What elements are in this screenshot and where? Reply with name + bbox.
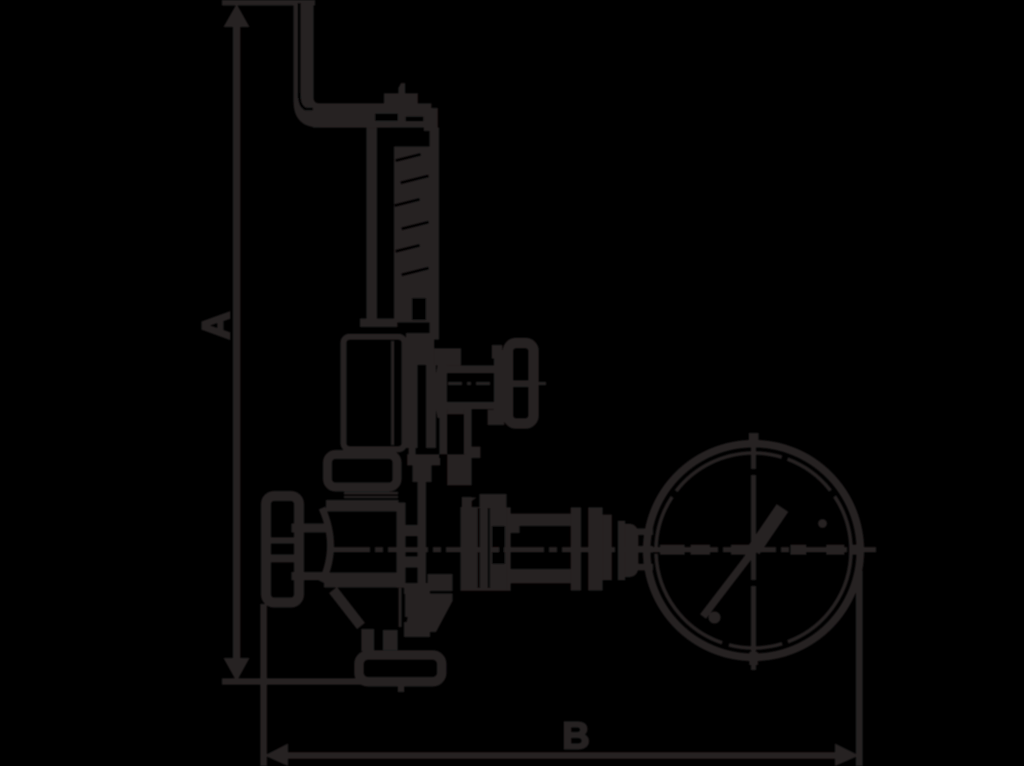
svg-text:A: A [195, 311, 238, 339]
svg-text:B: B [562, 716, 589, 758]
